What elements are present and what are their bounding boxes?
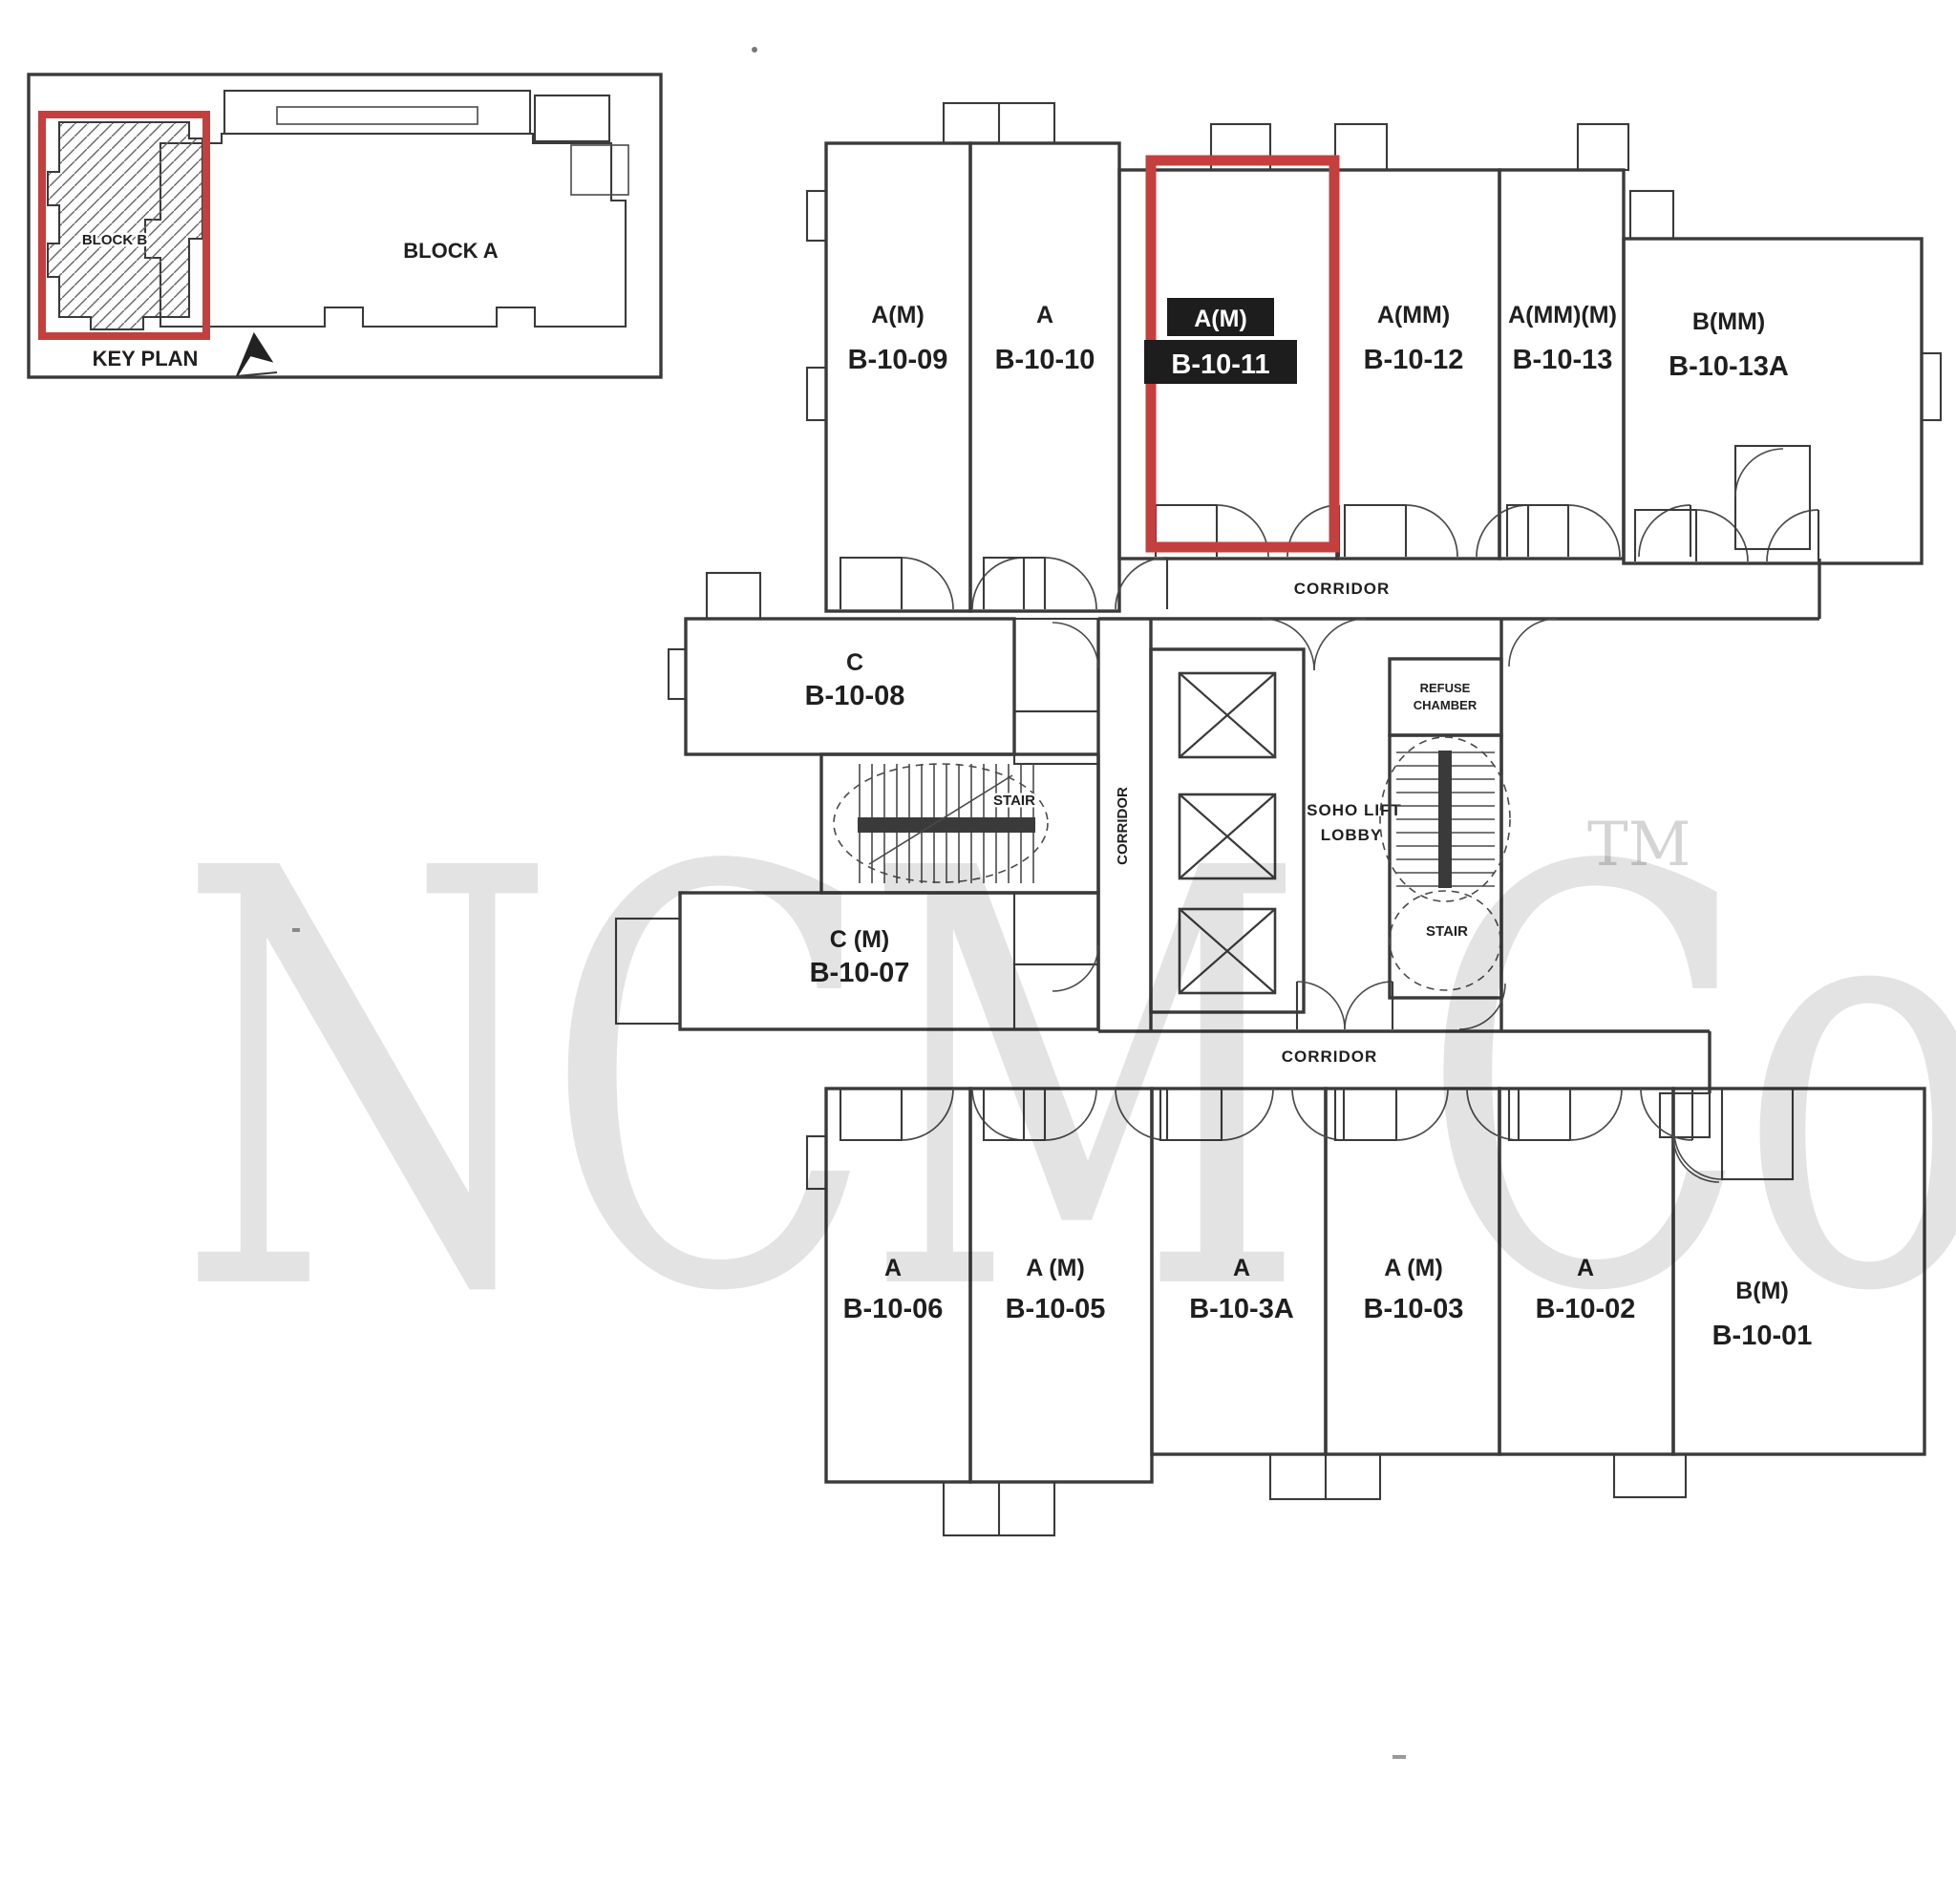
tab-left-09-a [807, 191, 826, 241]
balcony-bottom-02 [1614, 1454, 1686, 1497]
unit-b-10-06 [826, 1089, 970, 1482]
tab-left-08 [669, 649, 686, 699]
doors-unit-10 [984, 558, 1167, 609]
unit-number-label: B-10-3A [1189, 1294, 1294, 1324]
unit-type-label: A [1233, 1255, 1250, 1281]
unit-type-label: A (M) [1026, 1255, 1085, 1281]
door-arc-unit-01 [1673, 1136, 1719, 1182]
unit-type-label: A (M) [1384, 1255, 1443, 1281]
projection-top-13a [1630, 191, 1673, 239]
unit-number-label: B-10-13A [1669, 351, 1789, 382]
lobby-door-arc-top-left [1263, 619, 1314, 670]
unit-type-label: C (M) [830, 926, 889, 953]
floor-plan-page: BLOCK B BLOCK A KEY PLAN [0, 0, 1956, 1904]
service-room-07-a [1014, 893, 1098, 964]
lift-lobby-label-1: SOHO LIFT [1307, 801, 1402, 819]
closet-01 [1722, 1089, 1793, 1179]
unit-type-label: C [846, 649, 863, 676]
door-arc-service-08 [1052, 623, 1098, 668]
annex-left-07 [616, 919, 680, 1024]
refuse-access-door-arc [1509, 619, 1557, 666]
key-plan-roof-box-2 [571, 145, 628, 195]
service-room-08-a [1014, 619, 1098, 711]
lobby-door-arc-top-right [1314, 619, 1366, 670]
unit-number-label-highlighted: B-10-11 [1171, 349, 1269, 380]
tab-left-09-b [807, 368, 826, 420]
refuse-chamber-room [1390, 659, 1501, 735]
unit-type-label: B(M) [1735, 1278, 1789, 1304]
key-plan: BLOCK B BLOCK A KEY PLAN [29, 74, 661, 377]
doors-unit-13 [1507, 505, 1690, 557]
scan-speck [752, 47, 757, 53]
doors-unit-06 [840, 1089, 1024, 1140]
bottom-row-labels: A B-10-06 A (M) B-10-05 A B-10-3A A (M) … [843, 1255, 1813, 1351]
lobby-door-arc-bottom-right [1345, 982, 1393, 1029]
lift-shaft-2 [1180, 794, 1275, 878]
door-arc-service-07 [1052, 945, 1098, 991]
unit-b-10-10 [970, 143, 1119, 611]
unit-b-10-13a [1624, 239, 1922, 563]
doors-unit-05 [984, 1089, 1167, 1140]
unit-number-label: B-10-12 [1364, 345, 1464, 375]
doors-unit-09 [840, 558, 1024, 609]
lift-lobby-label-2: LOBBY [1321, 826, 1383, 844]
corridor-label-side: CORRIDOR [1115, 787, 1131, 865]
unit-number-label: B-10-08 [805, 681, 905, 711]
top-row-labels: A(M) B-10-09 A B-10-10 A(M) B-10-11 A(MM… [848, 298, 1789, 384]
scan-speck-3 [1393, 1755, 1406, 1759]
unit-number-label: B-10-02 [1536, 1294, 1636, 1324]
key-plan-roof-box [535, 95, 609, 141]
service-room-07-b [1014, 964, 1098, 1029]
stair-right-sweep-lower [1390, 891, 1500, 990]
unit-type-label: A [1036, 302, 1053, 328]
lift-shaft-1 [1180, 673, 1275, 757]
floor-plan-drawing: BLOCK B BLOCK A KEY PLAN [0, 0, 1956, 1904]
refuse-chamber-label-2: CHAMBER [1414, 698, 1478, 712]
unit-number-label: B-10-13 [1513, 345, 1613, 375]
unit-type-label: B(MM) [1692, 308, 1765, 335]
unit-number-label: B-10-01 [1712, 1321, 1813, 1351]
tab-right-13a [1922, 353, 1941, 420]
tab-left-06 [807, 1136, 826, 1189]
doors-unit-02 [1509, 1089, 1692, 1140]
corridor-bottom-stub [1660, 1093, 1710, 1137]
unit-number-label: B-10-03 [1364, 1294, 1464, 1324]
unit-type-label-highlighted: A(M) [1194, 306, 1247, 332]
lift-shaft-enclosure [1151, 649, 1304, 1012]
unit-number-label: B-10-07 [810, 958, 910, 988]
unit-b-10-09 [826, 143, 970, 611]
key-plan-caption: KEY PLAN [93, 347, 199, 370]
key-plan-roof-strip [224, 91, 530, 134]
stair-left-label: STAIR [993, 793, 1035, 809]
service-room-08-b [1014, 711, 1098, 764]
key-plan-block-a-outline [145, 134, 626, 327]
unit-type-label: A [884, 1255, 902, 1281]
corridor-label-top: CORRIDOR [1294, 580, 1391, 598]
scan-speck-2 [292, 928, 300, 932]
north-arrow-icon [237, 334, 271, 376]
closet-13a [1735, 446, 1810, 549]
stair-right-rail [1438, 751, 1452, 888]
unit-type-label: A(MM) [1377, 302, 1450, 328]
unit-b-10-01 [1673, 1089, 1924, 1454]
projection-top-08 [707, 573, 760, 619]
central-core: SOHO LIFT LOBBY REFUSE CHAMBER STAIR [1151, 619, 1557, 1031]
key-plan-block-a-label: BLOCK A [403, 239, 499, 263]
unit-b-10-05 [970, 1089, 1152, 1482]
key-plan-block-b-label: BLOCK B [82, 232, 147, 248]
projection-top-13 [1578, 124, 1628, 170]
key-plan-block-b-hatched [48, 122, 202, 329]
stair-right-door-arc [1459, 984, 1505, 1029]
doors-unit-3a [1160, 1089, 1344, 1140]
lift-shaft-3 [1180, 909, 1275, 993]
refuse-chamber-label-1: REFUSE [1420, 681, 1471, 695]
doors-unit-03 [1335, 1089, 1519, 1140]
key-plan-roof-inner [277, 107, 478, 124]
unit-type-label: A(M) [871, 302, 925, 328]
doors-unit-13a [1635, 510, 1818, 561]
projection-top-12 [1335, 124, 1387, 170]
unit-type-label: A [1577, 1255, 1594, 1281]
corridor-label-bottom: CORRIDOR [1282, 1047, 1378, 1066]
unit-number-label: B-10-05 [1006, 1294, 1106, 1324]
stair-right-label: STAIR [1426, 923, 1468, 940]
unit-type-label: A(MM)(M) [1508, 302, 1617, 328]
closet-13a-door-arc [1735, 449, 1783, 497]
unit-number-label: B-10-10 [995, 345, 1095, 375]
stair-left-rail [858, 817, 1035, 833]
corridors: CORRIDOR CORRIDOR CORRIDOR [1098, 559, 1819, 1137]
unit-number-label: B-10-06 [843, 1294, 944, 1324]
unit-number-label: B-10-09 [848, 345, 948, 375]
